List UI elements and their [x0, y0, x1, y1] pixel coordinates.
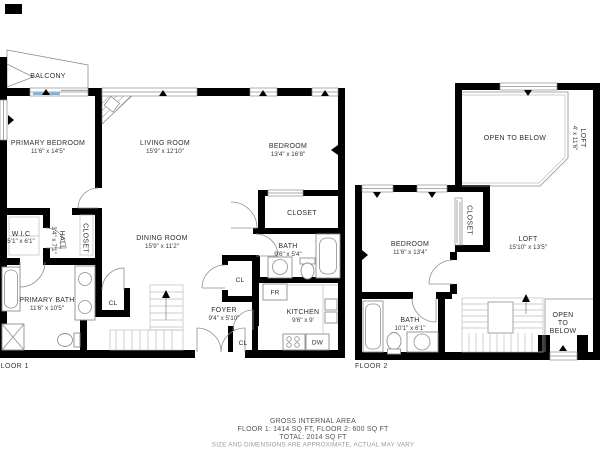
label-closet-lower: CL — [239, 340, 248, 347]
label-open-below-l1: OPEN — [552, 312, 573, 319]
dims-kitchen: 9'6" x 9' — [292, 317, 314, 324]
label-dining-room: DINING ROOM — [136, 235, 188, 242]
label-loft-side: LOFT — [579, 128, 586, 148]
label-balcony: BALCONY — [30, 73, 66, 80]
bath2-tub — [363, 301, 383, 352]
footer-area-title: GROSS INTERNAL AREA — [270, 418, 356, 425]
label-closet-upper: CL — [236, 277, 245, 284]
label-primary-bedroom: PRIMARY BEDROOM — [11, 140, 85, 147]
floorplan-page: BALCONY PRIMARY BEDROOM 11'6" x 14'5" LI… — [0, 0, 600, 450]
primary-vanity-sinks — [75, 266, 95, 320]
dims-bedroom: 13'4" x 16'8" — [271, 151, 306, 158]
structure-block — [5, 4, 22, 14]
label-hall: HALL — [58, 231, 65, 250]
balcony-slider-window — [30, 88, 88, 96]
primary-bathtub — [2, 267, 20, 311]
bath2-toilet — [387, 333, 401, 355]
closet2-slider — [455, 198, 462, 245]
label-wic: W.I.C — [12, 231, 31, 238]
background — [0, 0, 600, 450]
dims-bedroom2: 11'6" x 13'4" — [393, 249, 427, 256]
dims-loft-side: 4' x 11'6" — [571, 126, 578, 151]
bath2-sink — [407, 332, 438, 352]
label-bath: BATH — [278, 243, 297, 250]
bath-tub — [316, 234, 340, 278]
label-open-to-below-top: OPEN TO BELOW — [484, 135, 546, 142]
footer-total-area: TOTAL: 2014 SQ FT — [279, 434, 347, 441]
label-bedroom-closet: CLOSET — [287, 210, 317, 217]
bath-sink — [268, 257, 292, 278]
dims-living-room: 15'9" x 12'10" — [146, 148, 184, 155]
label-kitchen: KITCHEN — [287, 309, 320, 316]
dims-foyer: 9'4" x 5'10" — [208, 315, 239, 322]
label-primary-bath: PRIMARY BATH — [19, 297, 74, 304]
label-living-room: LIVING ROOM — [140, 140, 190, 147]
primary-toilet — [58, 333, 81, 347]
label-fridge: FR — [270, 290, 279, 297]
label-closet-dining: CL — [109, 300, 118, 307]
dims-bath2: 10'1" x 6'1" — [394, 325, 425, 332]
label-loft: LOFT — [518, 236, 538, 243]
dims-dining-room: 15'9" x 11'2" — [145, 243, 179, 250]
dims-loft: 15'10" x 13'5" — [509, 244, 547, 251]
dims-hall: 3'4" x 7'1" — [50, 226, 57, 254]
footer-disclaimer: SIZE AND DIMENSIONS ARE APPROXIMATE, ACT… — [212, 442, 415, 449]
label-closet2: CLOSET — [466, 205, 473, 235]
stove — [283, 334, 305, 350]
label-open-below-l2: TO — [558, 320, 568, 327]
dims-wic: 5'1" x 6'1" — [7, 238, 35, 245]
dims-primary-bedroom: 11'6" x 14'5" — [31, 148, 65, 155]
label-dishwasher: DW — [312, 340, 324, 347]
dims-bath: 9'6" x 5'4" — [274, 251, 302, 258]
label-bedroom2: BEDROOM — [391, 241, 429, 248]
bath-toilet — [300, 258, 315, 279]
dims-primary-bath: 11'6" x 10'5" — [30, 305, 64, 312]
label-hall-closet: CLOSET — [82, 223, 89, 253]
floorplan-canvas: BALCONY PRIMARY BEDROOM 11'6" x 14'5" LI… — [0, 0, 600, 450]
footer-floor-areas: FLOOR 1: 1414 SQ FT, FLOOR 2: 600 SQ FT — [238, 426, 389, 433]
label-foyer: FOYER — [211, 307, 237, 314]
label-bath2: BATH — [400, 317, 419, 324]
shower — [2, 324, 24, 350]
label-open-below-l3: BELOW — [550, 328, 577, 335]
floor1-title: FLOOR 1 — [0, 363, 29, 370]
floor2-title: FLOOR 2 — [355, 363, 388, 370]
label-bedroom: BEDROOM — [269, 143, 307, 150]
